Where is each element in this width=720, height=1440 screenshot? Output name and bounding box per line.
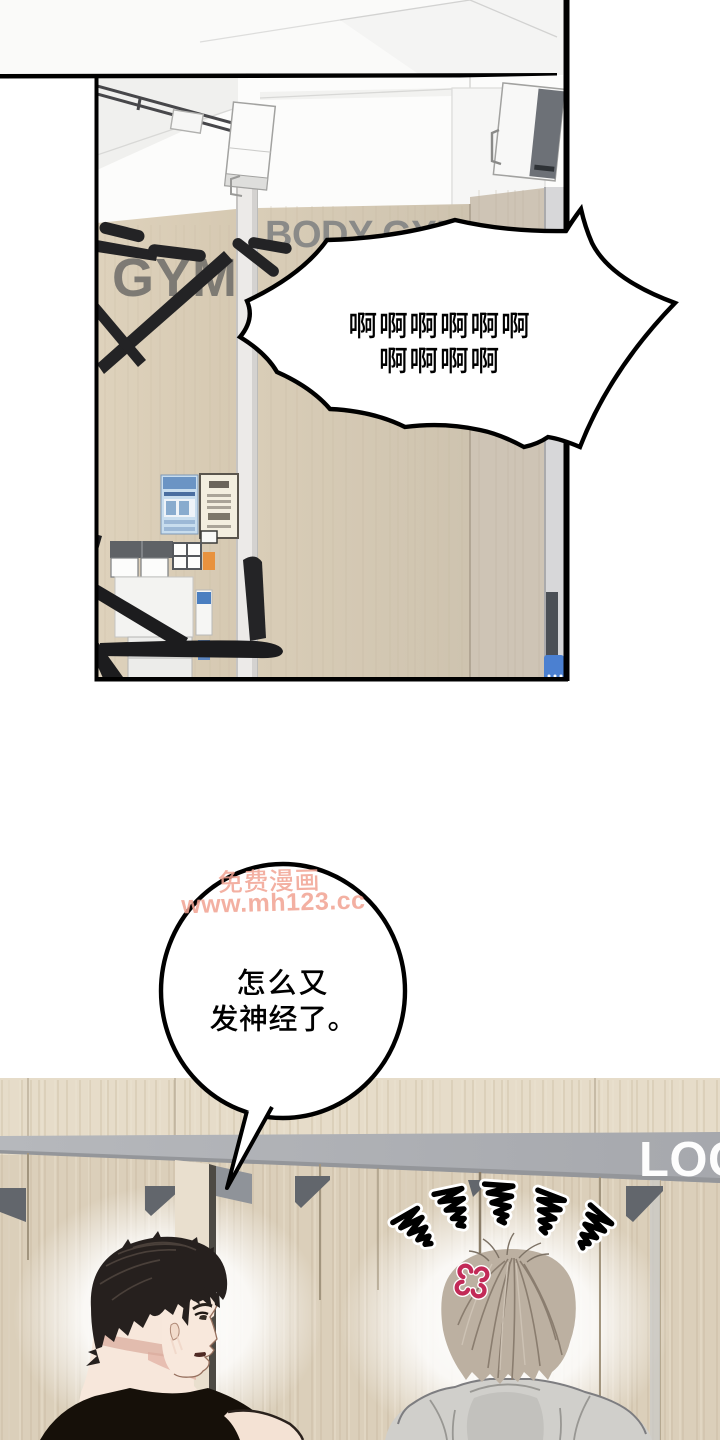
svg-text:www.mh123.cc: www.mh123.cc [180, 887, 366, 920]
svg-text:LOC: LOC [639, 1133, 720, 1187]
